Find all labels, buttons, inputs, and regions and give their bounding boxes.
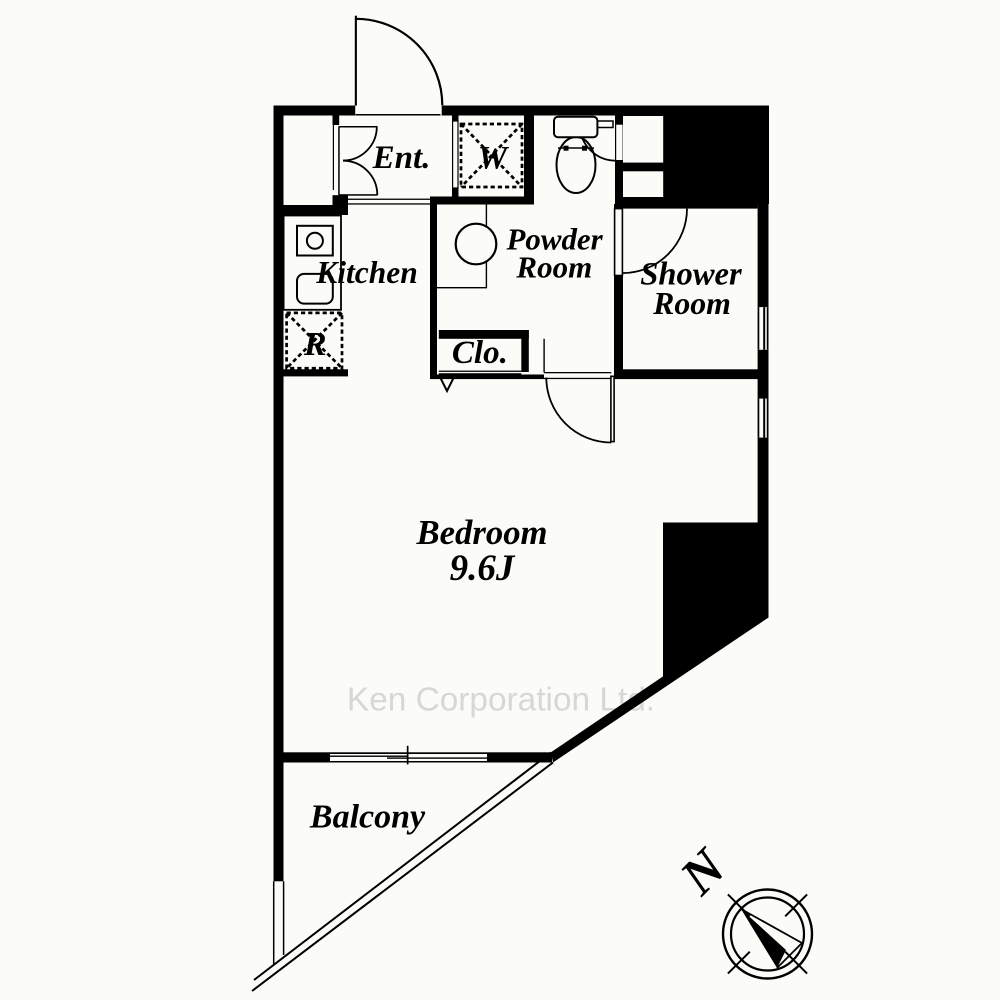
svg-text:R: R [303,326,327,363]
svg-text:W: W [478,141,510,177]
svg-text:Clo.: Clo. [452,335,508,371]
svg-text:9.6J: 9.6J [450,548,516,589]
svg-text:Room: Room [515,250,592,285]
svg-text:Room: Room [652,286,731,321]
svg-text:Ent.: Ent. [372,140,431,176]
svg-text:Bedroom: Bedroom [415,513,547,552]
svg-text:Balcony: Balcony [309,799,426,836]
svg-text:Ken Corporation Ltd.: Ken Corporation Ltd. [347,682,655,719]
svg-text:Kitchen: Kitchen [315,255,418,290]
